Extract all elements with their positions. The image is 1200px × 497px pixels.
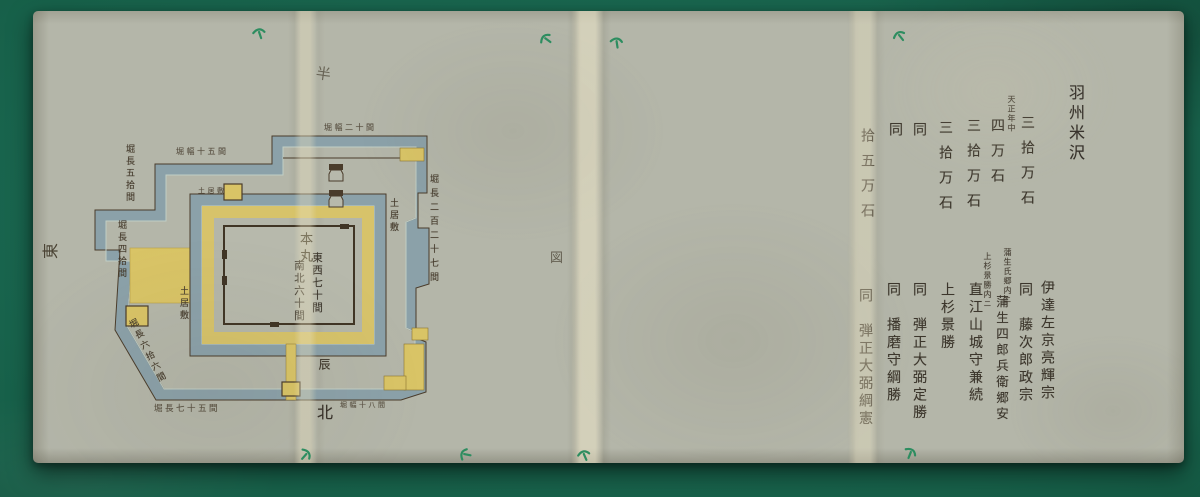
roster-amount-4: 三拾万石 — [964, 118, 984, 218]
roster-name-4: 直江山城守兼続 — [966, 282, 986, 405]
label-doishiki-east: 土居敷 — [388, 198, 401, 234]
binding-thread-icon — [574, 445, 594, 468]
label-moat-width-top-right: 堀幅二十間 — [324, 122, 377, 133]
honmaru-wall-tick-3 — [270, 322, 279, 327]
honmaru-wall-tick-4 — [340, 224, 349, 229]
roster-name-3: 蒲生四郎兵衛郷安 — [992, 295, 1011, 423]
document-paper: 本丸 東西七十間 南北六十間 土居敷 土居敷 土居敷 堀長二百二十七間 堀長五拾… — [33, 11, 1184, 463]
gate-tower-icon — [329, 190, 343, 207]
photograph-of-castle-map-document: 本丸 東西七十間 南北六十間 土居敷 土居敷 土居敷 堀長二百二十七間 堀長五拾… — [0, 0, 1200, 497]
label-moat-length-west: 堀長四拾間 — [116, 220, 129, 280]
direction-marker-se: 辰 — [316, 358, 333, 370]
label-moat-length-nw: 堀長五拾間 — [124, 144, 137, 204]
wall-yellow-ne — [400, 148, 424, 161]
roster-name-2: 同 藤次郎政宗 — [1016, 282, 1036, 405]
binding-thread-icon — [604, 32, 627, 57]
binding-thread-icon — [248, 23, 269, 47]
label-honmaru-north-south: 南北六十間 — [292, 260, 307, 323]
roster-amount-5: 三拾万石 — [936, 120, 956, 220]
binding-thread-icon — [892, 28, 907, 48]
label-doishiki-west: 土居敷 — [178, 286, 191, 322]
se-rampart-yellow — [404, 344, 424, 390]
compass-east: 東 — [37, 243, 61, 259]
gate-tower-icon — [329, 164, 343, 181]
roster-amount-3: 四万石 — [988, 118, 1008, 193]
roster-name-1: 伊達左京亮輝宗 — [1038, 280, 1058, 403]
label-moat-width-top-left: 堀幅十五間 — [176, 146, 229, 157]
binding-thread-icon — [292, 446, 314, 464]
label-honmaru-east-west: 東西七十間 — [310, 252, 325, 315]
roster-name-7: 同 播磨守綱勝 — [884, 282, 904, 405]
roster-title: 羽州米沢 — [1062, 84, 1086, 164]
compass-north: 北 — [310, 404, 334, 420]
label-doishiki-north: 土居敷 — [198, 186, 227, 196]
honmaru-wall — [224, 226, 354, 324]
lords-roster: 羽州米沢 伊達左京亮輝宗 天正年中 三拾万石 同 藤次郎政宗 四万石 蒲生氏郷内… — [840, 78, 1092, 458]
roster-amount-7: 同 — [886, 122, 906, 136]
east-bridge-yellow — [412, 328, 428, 340]
roster-name-8: 同 弾正大弼綱憲 — [856, 288, 876, 428]
roster-amount-8: 拾五万石 — [858, 128, 878, 228]
label-moat-width-bottom-right: 堀幅十八間 — [340, 400, 388, 410]
south-gate — [282, 382, 300, 396]
honmaru-wall-tick-1 — [222, 250, 227, 259]
roster-name-6: 同 弾正大弼定勝 — [910, 282, 930, 422]
fold-mark-center: 図 — [550, 247, 563, 266]
roster-amount-6: 同 — [910, 122, 930, 136]
binding-thread-icon — [454, 444, 478, 469]
label-moat-length-east: 堀長二百二十七間 — [428, 174, 441, 286]
label-moat-length-bottom: 堀長七十五間 — [154, 402, 220, 414]
binding-thread-icon — [537, 29, 557, 52]
se-rampart-arm — [384, 376, 406, 390]
honmaru-wall-tick-2 — [222, 276, 227, 285]
roster-name-5: 上杉景勝 — [938, 282, 958, 352]
roster-amount-2: 三拾万石 — [1018, 115, 1038, 215]
castle-map: 本丸 東西七十間 南北六十間 土居敷 土居敷 土居敷 堀長二百二十七間 堀長五拾… — [72, 98, 452, 438]
fold-mark-top: 半 — [315, 62, 333, 85]
